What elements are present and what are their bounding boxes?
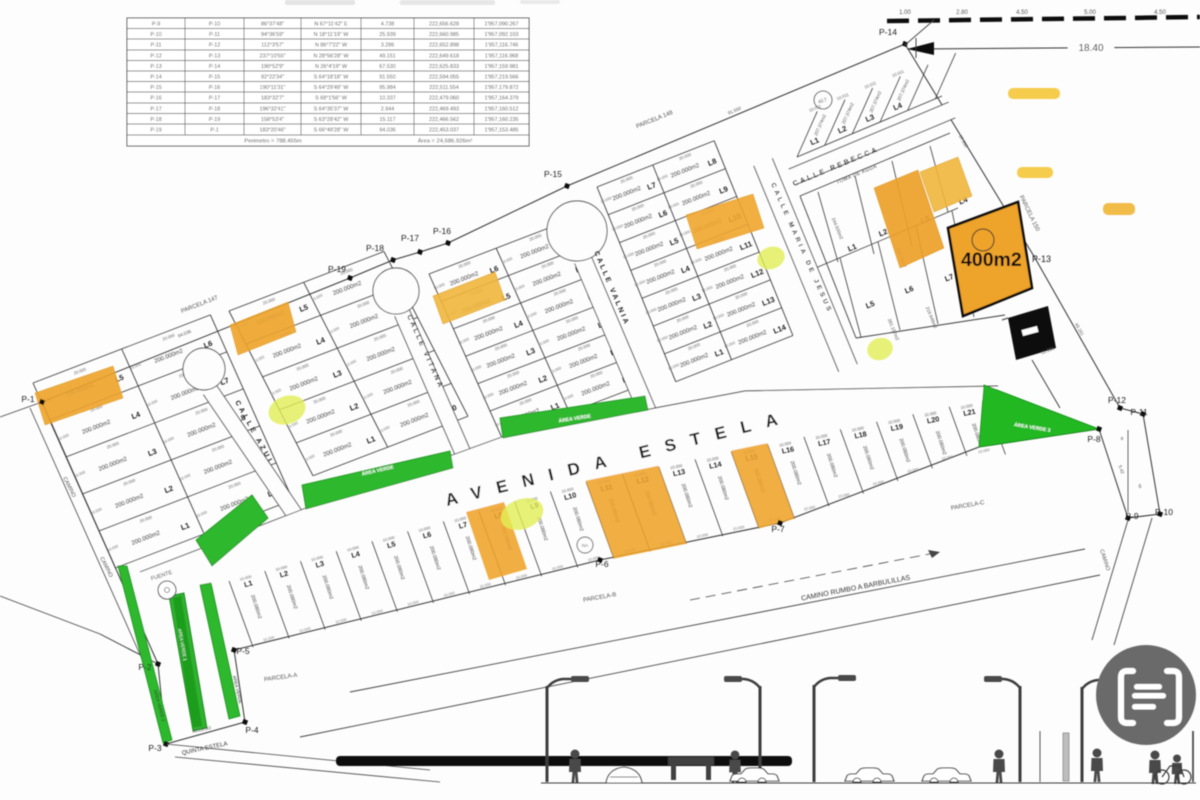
svg-text:49.151: 49.151 [379,54,396,60]
svg-text:S 68°1'56" W: S 68°1'56" W [315,96,348,102]
svg-text:1.00: 1.00 [899,10,911,16]
svg-text:P-17: P-17 [401,233,419,243]
svg-text:222,652.898: 222,652.898 [429,43,459,49]
svg-text:4.50: 4.50 [1154,10,1166,16]
svg-text:222,479.060: 222,479.060 [429,96,459,102]
svg-text:222,453.037: 222,453.037 [429,128,459,134]
svg-text:P-2: P-2 [138,662,152,672]
svg-text:95.984: 95.984 [379,85,396,91]
svg-text:P-14: P-14 [150,75,161,81]
svg-text:112°3'57": 112°3'57" [261,43,284,49]
svg-text:P-9: P-9 [1125,511,1139,521]
svg-text:91.550: 91.550 [379,75,396,81]
svg-text:196°32'41": 196°32'41" [259,107,285,113]
svg-text:S 66°49'28" W: S 66°49'28" W [314,128,350,134]
svg-text:1'957,179.872: 1'957,179.872 [484,85,518,91]
svg-text:P-12: P-12 [1108,395,1126,405]
svg-text:P-16: P-16 [433,226,451,236]
svg-text:S 64°18'18" W: S 64°18'18" W [314,75,350,81]
svg-text:P-13: P-13 [1032,254,1051,264]
svg-text:P-11: P-11 [209,32,220,38]
svg-text:P-3: P-3 [148,743,162,753]
svg-text:P-19: P-19 [328,264,346,274]
svg-text:P-7: P-7 [771,524,785,534]
svg-text:1'957,092.103: 1'957,092.103 [484,32,518,38]
svg-text:222,511.554: 222,511.554 [429,85,459,91]
svg-text:P-15: P-15 [209,75,220,81]
svg-text:2.80: 2.80 [956,10,968,16]
svg-text:P-12: P-12 [209,43,220,49]
svg-text:P-11: P-11 [151,43,162,49]
svg-text:P-12: P-12 [150,54,161,60]
svg-text:N 28°56'28" W: N 28°56'28" W [313,54,349,60]
svg-text:P-1: P-1 [21,394,35,404]
svg-text:183°20'46": 183°20'46" [259,128,285,134]
svg-text:S 64°29'49" W: S 64°29'49" W [314,85,350,91]
svg-text:158°53'4": 158°53'4" [261,117,284,123]
svg-text:Área = 24,686.926m²: Área = 24,686.926m² [418,138,473,145]
svg-text:1'957,159.981: 1'957,159.981 [484,64,518,70]
svg-text:P-13: P-13 [150,64,161,70]
svg-text:P-18: P-18 [150,117,161,123]
svg-text:P-14: P-14 [879,27,897,37]
svg-text:N 86°7'22" W: N 86°7'22" W [315,43,348,49]
svg-text:S 64°35'37" W: S 64°35'37" W [314,107,350,113]
svg-text:86°37'48": 86°37'48" [261,21,284,27]
svg-text:S 63°28'42" W: S 63°28'42" W [314,117,350,123]
svg-text:P-17: P-17 [209,96,220,102]
svg-text:P-16: P-16 [150,96,161,102]
svg-text:P-5: P-5 [236,646,250,656]
svg-text:94.036: 94.036 [379,128,396,134]
svg-text:N 26°4'19" W: N 26°4'19" W [315,64,348,70]
svg-text:1'957,116.968: 1'957,116.968 [485,54,519,60]
svg-text:P-10: P-10 [209,21,220,27]
svg-text:P-9: P-9 [152,21,160,27]
svg-text:P-18: P-18 [209,107,220,113]
svg-text:3.286: 3.286 [381,43,395,49]
svg-text:P-1: P-1 [210,128,218,134]
svg-text:P-16: P-16 [209,85,220,91]
svg-text:P-17: P-17 [150,107,161,113]
svg-text:P-4: P-4 [245,725,259,735]
svg-text:6: 6 [1139,484,1142,490]
svg-text:Perimetro = 788.455m: Perimetro = 788.455m [244,139,302,145]
svg-text:190°11'31": 190°11'31" [260,85,286,91]
svg-text:P-15: P-15 [544,169,562,179]
svg-text:237°10'55": 237°10'55" [259,54,285,60]
svg-text:P-18: P-18 [366,243,384,253]
svg-text:P-19: P-19 [209,117,220,123]
svg-text:4.738: 4.738 [381,21,395,27]
svg-text:222,466.562: 222,466.562 [429,117,459,123]
svg-text:5.00: 5.00 [1084,10,1096,16]
svg-text:67.530: 67.530 [379,64,396,70]
svg-text:1'957,164.379: 1'957,164.379 [484,96,518,102]
svg-text:94°36'59": 94°36'59" [261,32,284,38]
svg-text:P-8: P-8 [1087,434,1101,444]
svg-text:18.40: 18.40 [1078,43,1103,54]
svg-text:400m2: 400m2 [961,249,1022,271]
svg-text:P-13: P-13 [209,54,220,60]
svg-text:N 18°11'19" W: N 18°11'19" W [314,32,350,38]
svg-text:2.944: 2.944 [381,107,395,113]
svg-text:222,656.628: 222,656.628 [429,21,459,27]
svg-text:222,649.618: 222,649.618 [429,54,459,60]
svg-text:1'957,153.485: 1'957,153.485 [484,128,518,134]
svg-text:222,469.493: 222,469.493 [429,107,459,113]
svg-text:1'957,160.235: 1'957,160.235 [484,117,518,123]
svg-text:P-19: P-19 [150,128,161,134]
svg-text:183°32'7": 183°32'7" [261,96,284,102]
svg-text:P-11: P-11 [1130,407,1148,417]
svg-text:222,625.833: 222,625.833 [429,64,459,70]
svg-text:222,594.055: 222,594.055 [429,75,459,81]
svg-text:1'957,116.746: 1'957,116.746 [485,43,519,49]
svg-text:NA: NA [582,543,588,548]
svg-text:92°22'34": 92°22'34" [261,75,284,81]
svg-text:25.939: 25.939 [379,32,396,38]
svg-text:190°52'9": 190°52'9" [261,64,284,70]
svg-text:1'957,090.267: 1'957,090.267 [484,21,518,27]
svg-text:P-10: P-10 [1155,507,1173,517]
svg-text:1'957,160.512: 1'957,160.512 [484,107,518,113]
svg-text:P-10: P-10 [150,32,161,38]
svg-text:10.337: 10.337 [379,96,396,102]
svg-text:15.117: 15.117 [379,117,395,123]
svg-text:4.50: 4.50 [1016,10,1028,16]
svg-text:P-6: P-6 [595,559,609,569]
svg-text:222,660.985: 222,660.985 [429,32,459,38]
svg-text:1'957,219.566: 1'957,219.566 [484,75,518,81]
svg-text:P-15: P-15 [150,85,161,91]
svg-text:N 67°11'42" E: N 67°11'42" E [314,21,348,27]
svg-text:P-14: P-14 [209,64,220,70]
